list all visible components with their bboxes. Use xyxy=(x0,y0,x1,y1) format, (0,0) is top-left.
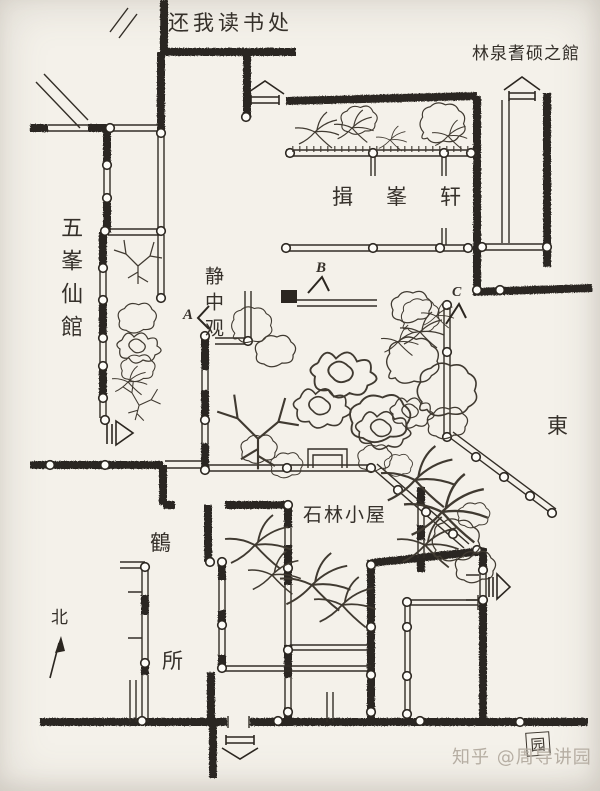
label-crane-he: 鶴 xyxy=(150,532,171,554)
label-reading-place: 还我读书处 xyxy=(168,12,293,34)
view-marker-b: B xyxy=(316,261,326,277)
label-wufeng-hall: 五峯仙館 xyxy=(58,216,81,348)
door-icon xyxy=(107,421,133,445)
label-crane-suo: 所 xyxy=(162,650,183,672)
label-linquan-hall: 林泉耆硕之館 xyxy=(472,46,580,64)
garden-plan-drawing xyxy=(0,0,600,791)
north-arrow-icon xyxy=(50,636,65,678)
view-arrows xyxy=(198,277,466,329)
label-east: 東 xyxy=(547,415,568,437)
gate-icon xyxy=(246,81,284,105)
view-marker-c: C xyxy=(452,286,461,301)
label-north: 北 xyxy=(51,610,68,628)
view-marker-a: A xyxy=(183,308,193,324)
door-icon xyxy=(489,574,510,599)
scanned-plan-page: 还我读书处 林泉耆硕之館 揖峯轩 五峯仙館 静中观 石林小屋 鶴 所 東 北 A… xyxy=(0,0,600,791)
gate-icon xyxy=(222,735,258,759)
label-yifeng-xuan: 揖峯轩 xyxy=(332,186,494,208)
view-arrow-b xyxy=(308,277,329,293)
watermark: 知乎 @周导讲园 xyxy=(452,749,592,768)
gate-icon xyxy=(504,77,540,101)
label-shilin-cottage: 石林小屋 xyxy=(303,506,387,526)
label-jingzhong-guan: 静中观 xyxy=(202,266,222,344)
